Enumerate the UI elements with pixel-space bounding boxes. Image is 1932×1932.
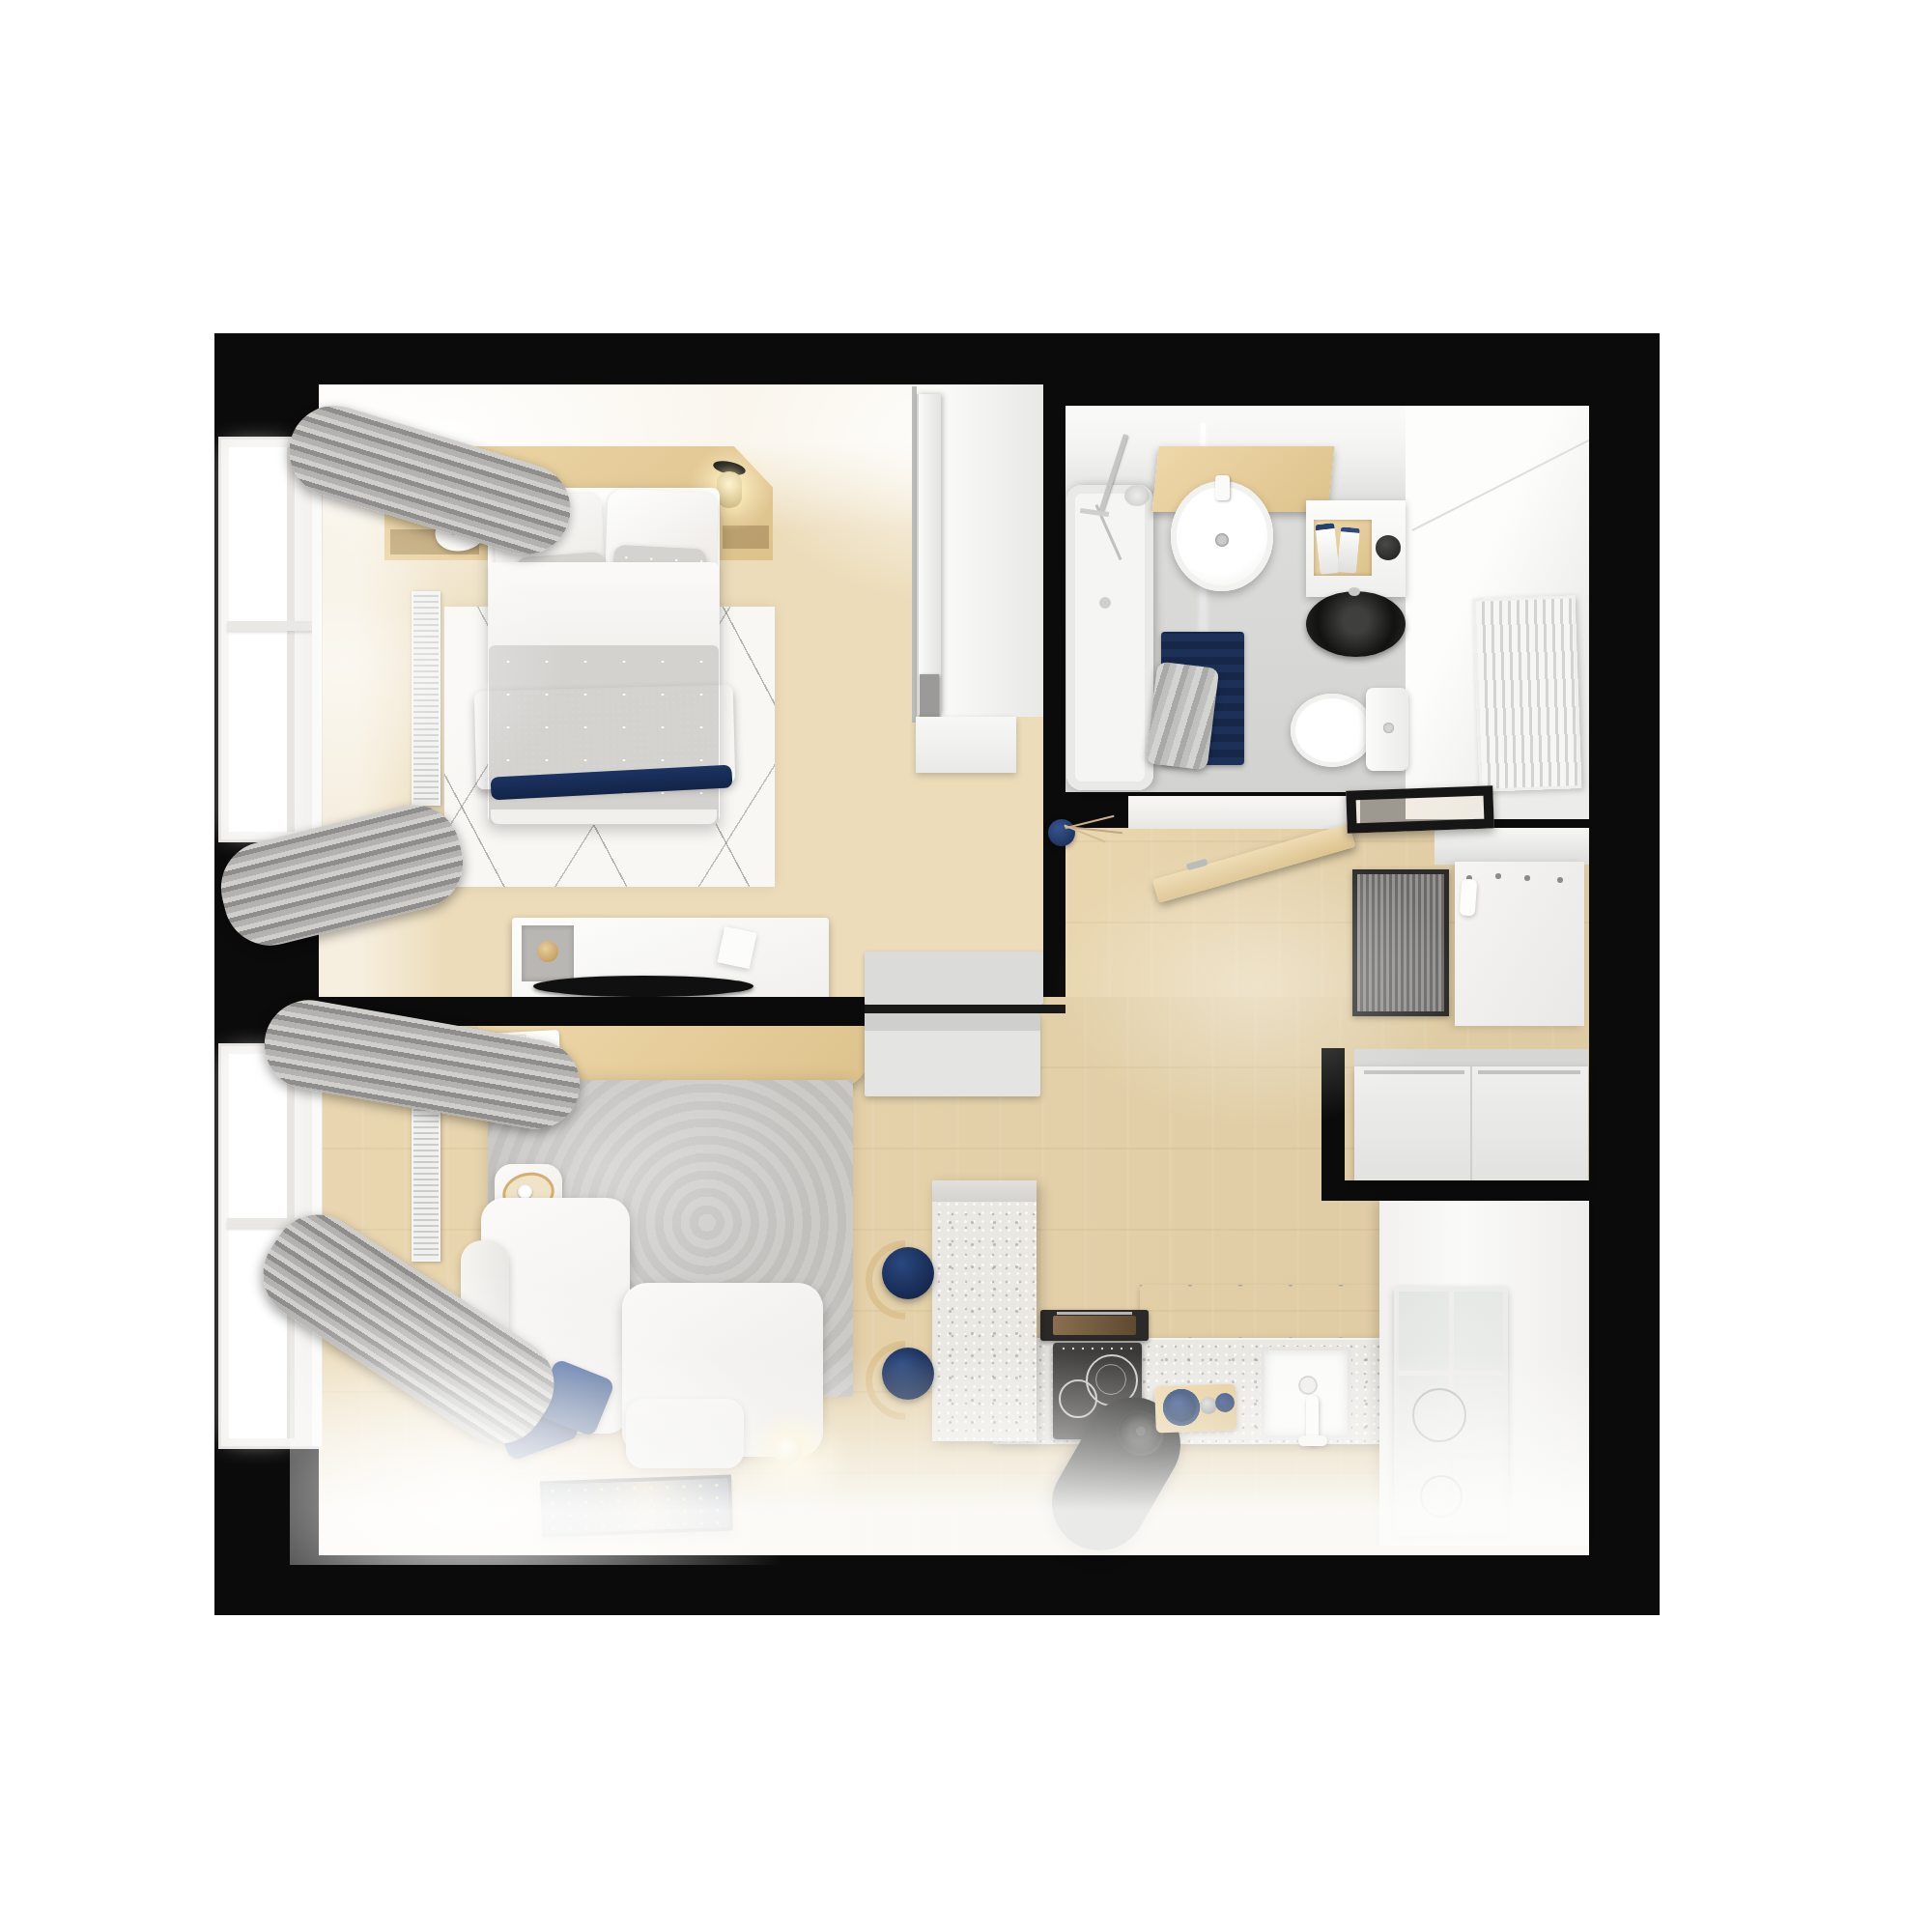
ceiling-light-frame <box>1346 785 1493 833</box>
sliding-door-panel <box>917 394 941 715</box>
stool-2-seat <box>882 1348 934 1400</box>
bedroom-window-glass <box>229 447 287 832</box>
right-nightstand-shelf-slot <box>723 526 769 549</box>
detergent-bottle-2 <box>1337 526 1360 574</box>
washbasin-faucet <box>1215 475 1230 500</box>
living-radiator <box>412 1101 440 1262</box>
floor-art-frame <box>540 1475 733 1538</box>
tray-espresso-cup <box>518 1184 532 1199</box>
kitchen-upper-cabinets <box>1140 1285 1381 1341</box>
bedroom-window <box>218 437 323 842</box>
coat-hook-2 <box>1495 873 1501 879</box>
niche-front-wall <box>1435 828 1589 865</box>
dresser-knob-object <box>537 941 558 962</box>
bedroom-radiator <box>412 591 440 806</box>
hall-bench-top <box>1354 1049 1588 1066</box>
bedroom-window-mullion <box>287 447 295 832</box>
hanging-strap <box>1460 878 1478 916</box>
washer-drum-hinge <box>1349 587 1360 596</box>
navy-cup <box>1215 1393 1235 1412</box>
gray-towel <box>1146 661 1219 770</box>
bedroom-window-sill <box>312 440 322 839</box>
washer-black-pot <box>1376 535 1401 560</box>
navy-bowl-large <box>1163 1389 1200 1426</box>
sphere-lamp <box>773 1435 802 1464</box>
stool-1-seat <box>882 1247 934 1299</box>
cooktop-ring-medium <box>1059 1379 1097 1418</box>
glass-cabinet-shelf-2 <box>1399 1454 1503 1459</box>
glass-display-cabinet <box>1394 1287 1508 1536</box>
sliding-door-handle <box>920 674 939 723</box>
washer-drum <box>1306 591 1406 657</box>
bathtub-drain <box>1099 597 1111 609</box>
floor-plan-scene <box>0 0 1932 1932</box>
niche-radiator <box>1473 595 1582 792</box>
oven-window <box>1053 1316 1136 1335</box>
coat-hook-4 <box>1557 877 1563 883</box>
hall-vase-navy <box>1048 819 1075 846</box>
bedroom-bench <box>865 952 1043 1005</box>
sofa-seat-extension <box>626 1399 744 1468</box>
toilet-bowl <box>1291 694 1374 767</box>
hall-bench-handle-left <box>1364 1070 1464 1074</box>
entry-door-opening <box>1128 796 1360 829</box>
peninsula-top-cap <box>932 1180 1037 1202</box>
shower-head <box>1124 485 1150 506</box>
doorway-partition-line <box>865 1005 1065 1013</box>
right-wall-lamp-glass <box>717 471 742 508</box>
tv-on-dresser <box>533 976 753 997</box>
hall-bench-handle-right <box>1478 1070 1580 1074</box>
bedroom-window-sash-bar <box>227 621 316 631</box>
living-bench <box>865 1013 1040 1096</box>
hall-closet-wall-vertical <box>1321 1048 1345 1201</box>
cooktop-controls <box>1059 1347 1136 1350</box>
washbasin-drain <box>1215 533 1229 547</box>
bedroom-closet-band <box>937 384 1043 717</box>
toilet-flush-button <box>1383 723 1394 733</box>
cooktop-ring-inner <box>1095 1364 1126 1395</box>
sink-faucet-spout <box>1298 1435 1327 1446</box>
kitchen-peninsula <box>932 1180 1037 1441</box>
sink-drain <box>1298 1376 1318 1395</box>
entry-doormat <box>1352 869 1449 1016</box>
bed-foot-edge <box>491 810 717 824</box>
closet-end-block <box>916 717 1016 773</box>
oven-handle <box>1057 1312 1132 1315</box>
bathtub <box>1066 485 1153 790</box>
coat-hook-3 <box>1524 875 1530 881</box>
plate-shadow-1 <box>1412 1388 1466 1442</box>
plate-shadow-2 <box>1420 1475 1463 1518</box>
glass-cabinet-shelf-1 <box>1399 1371 1503 1376</box>
hall-bench-divider <box>1470 1066 1472 1180</box>
hall-kitchen-wall-stub <box>1321 1180 1589 1201</box>
